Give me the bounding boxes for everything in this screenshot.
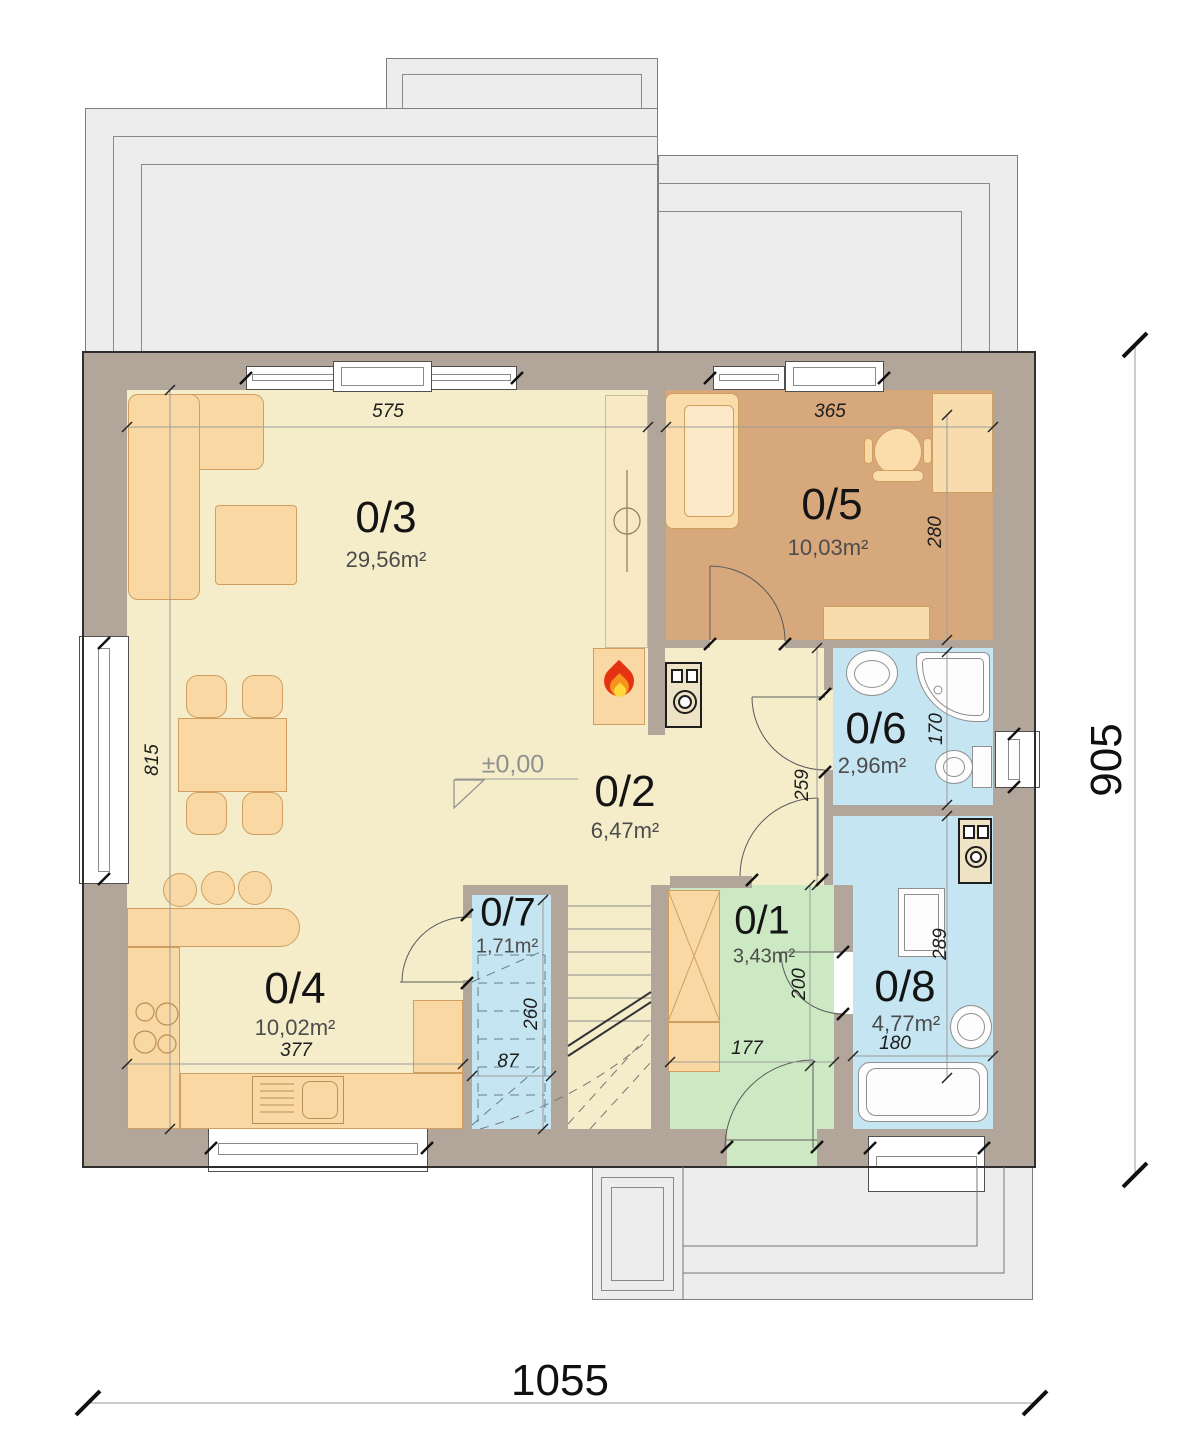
wall-entry-top (670, 876, 752, 888)
room-07-area: 1,71m² (476, 936, 538, 959)
wall-closet-left-a (463, 895, 472, 918)
room-05-area: 10,03m² (788, 535, 869, 561)
bathtub-inner (866, 1068, 980, 1116)
window-kitchen-bottom-inner (218, 1143, 418, 1155)
window-living-left-inner (98, 648, 110, 872)
dim-entry-width: 177 (731, 1038, 763, 1060)
wardrobe-lower (668, 1022, 720, 1072)
wall-chimney-stub (648, 648, 665, 735)
room-02-label: 0/2 (594, 767, 655, 817)
dim-office-top: 365 (814, 401, 846, 423)
bath-sink-inner (957, 1013, 985, 1041)
dim-living-top: 575 (372, 401, 404, 423)
entrance-opening (727, 1129, 817, 1167)
room-03-area: 29,56m² (346, 547, 427, 573)
room-03-label: 0/3 (355, 493, 416, 543)
wall-closet-left-b (463, 980, 472, 1129)
dining-chair (186, 792, 227, 835)
toilet-tank (972, 746, 992, 788)
room-01-label: 0/1 (734, 899, 790, 944)
wc-sink-inner (854, 660, 890, 688)
window-living-top-inner (341, 367, 424, 386)
wall-living-office (648, 390, 666, 640)
toilet-bowl-inner (943, 757, 965, 777)
dining-chair (242, 675, 283, 718)
room-05-label: 0/5 (801, 480, 862, 530)
coffee-table (215, 505, 297, 585)
room-07-label: 0/7 (480, 891, 536, 936)
room-01-area: 3,43m² (733, 946, 795, 969)
chimney (605, 395, 648, 648)
window-wc-right-inner (1008, 739, 1020, 780)
dim-closet-width: 87 (497, 1051, 518, 1073)
dining-chair (242, 792, 283, 835)
window-office-top-inner (793, 367, 876, 386)
wall-wc-bath (833, 805, 993, 816)
wall-hall-wc-top (824, 648, 833, 690)
office-chair-armrest (864, 438, 873, 464)
room-04-area: 10,02m² (255, 1015, 336, 1041)
office-desk-right (932, 393, 993, 493)
floor-plan: 0/3 29,56m² 0/5 10,03m² 0/6 2,96m² 0/2 6… (0, 0, 1200, 1447)
window-office-top-band-line (719, 374, 779, 381)
wardrobe (668, 890, 720, 1022)
room-04-label: 0/4 (264, 964, 325, 1014)
kitchen-counter-left (127, 947, 180, 1129)
office-chair-back (872, 470, 924, 482)
room-02-area: 6,47m² (591, 818, 659, 844)
corner-sofa-left (128, 394, 200, 600)
dim-bath-height: 289 (930, 928, 952, 960)
dim-overall-height: 905 (1082, 723, 1132, 796)
stove-icon (665, 662, 702, 728)
office-chair-seat (874, 428, 922, 476)
room-08-label: 0/8 (874, 962, 935, 1012)
office-daybed-seat (684, 405, 734, 517)
dim-kitchen-width: 377 (280, 1040, 312, 1062)
terrace-left-step2 (141, 164, 658, 352)
room-06-label: 0/6 (845, 704, 906, 754)
porch-pillar-inner (611, 1187, 664, 1281)
dim-bath-width: 180 (879, 1033, 911, 1055)
wall-entry-bath-top (834, 885, 853, 952)
flame-icon (602, 660, 636, 712)
wall-top (83, 352, 1035, 390)
dim-living-left: 815 (142, 744, 164, 776)
wall-closet-stairs (551, 895, 568, 1129)
dim-closet-height: 260 (521, 998, 543, 1030)
kitchen-sink-bowl (302, 1081, 338, 1119)
bar-stool (163, 873, 197, 907)
kitchen-counter-right (413, 1000, 463, 1073)
kitchen-peninsula (127, 908, 300, 947)
dim-hall-height: 259 (792, 769, 814, 801)
dim-overall-width: 1055 (511, 1356, 609, 1406)
wall-office-bottom-right (785, 640, 993, 648)
terrace-right-step2 (658, 211, 962, 352)
dining-table (178, 718, 287, 792)
dining-chair (186, 675, 227, 718)
bar-stool (238, 871, 272, 905)
bar-stool (201, 871, 235, 905)
room-06-area: 2,96m² (838, 753, 906, 779)
wall-hall-wc-bottom (824, 770, 833, 885)
furnace-icon (958, 818, 992, 884)
dim-office-right: 280 (925, 516, 947, 548)
dim-wc-height: 170 (926, 713, 948, 745)
wall-office-bottom-left (648, 640, 710, 648)
level-marker: ±0,00 (482, 751, 544, 780)
dim-entry-height: 200 (789, 968, 811, 1000)
office-desk-bottom (823, 606, 930, 640)
office-chair-armrest (923, 438, 932, 464)
window-bath-bottom-inner (876, 1156, 977, 1168)
wall-entry-bath-bottom (834, 1014, 853, 1129)
